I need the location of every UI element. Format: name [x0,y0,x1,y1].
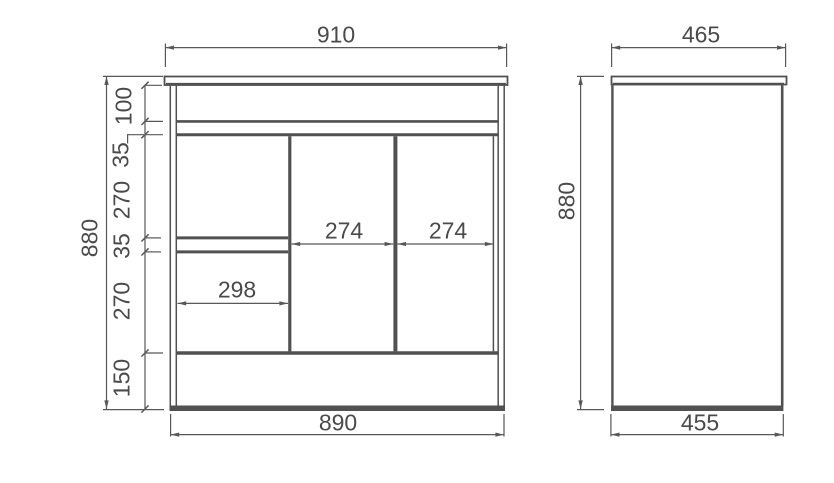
dim-height-side: 880 [556,182,579,220]
dim-door-width-right: 274 [429,220,467,243]
dim-chain-35-lower: 35 [111,233,134,259]
dim-door-width-left: 274 [325,220,363,243]
dim-drawer-width: 298 [218,279,256,302]
dim-chain-150: 150 [111,359,134,397]
dim-chain-35-upper: 35 [110,142,133,168]
dim-width-top-front: 910 [317,24,355,47]
dim-width-bottom-side: 455 [681,412,719,435]
dim-chain-270-lower: 270 [111,282,134,320]
dim-chain-100: 100 [113,87,136,125]
technical-drawing: 910 890 880 100 35 270 35 270 150 298 27… [0,0,834,483]
dim-width-top-side: 465 [682,24,720,47]
dim-chain-270-upper: 270 [111,181,134,219]
dim-height-front: 880 [79,219,102,257]
dim-width-bottom-front: 890 [319,412,357,435]
side-view-linework [611,77,787,409]
